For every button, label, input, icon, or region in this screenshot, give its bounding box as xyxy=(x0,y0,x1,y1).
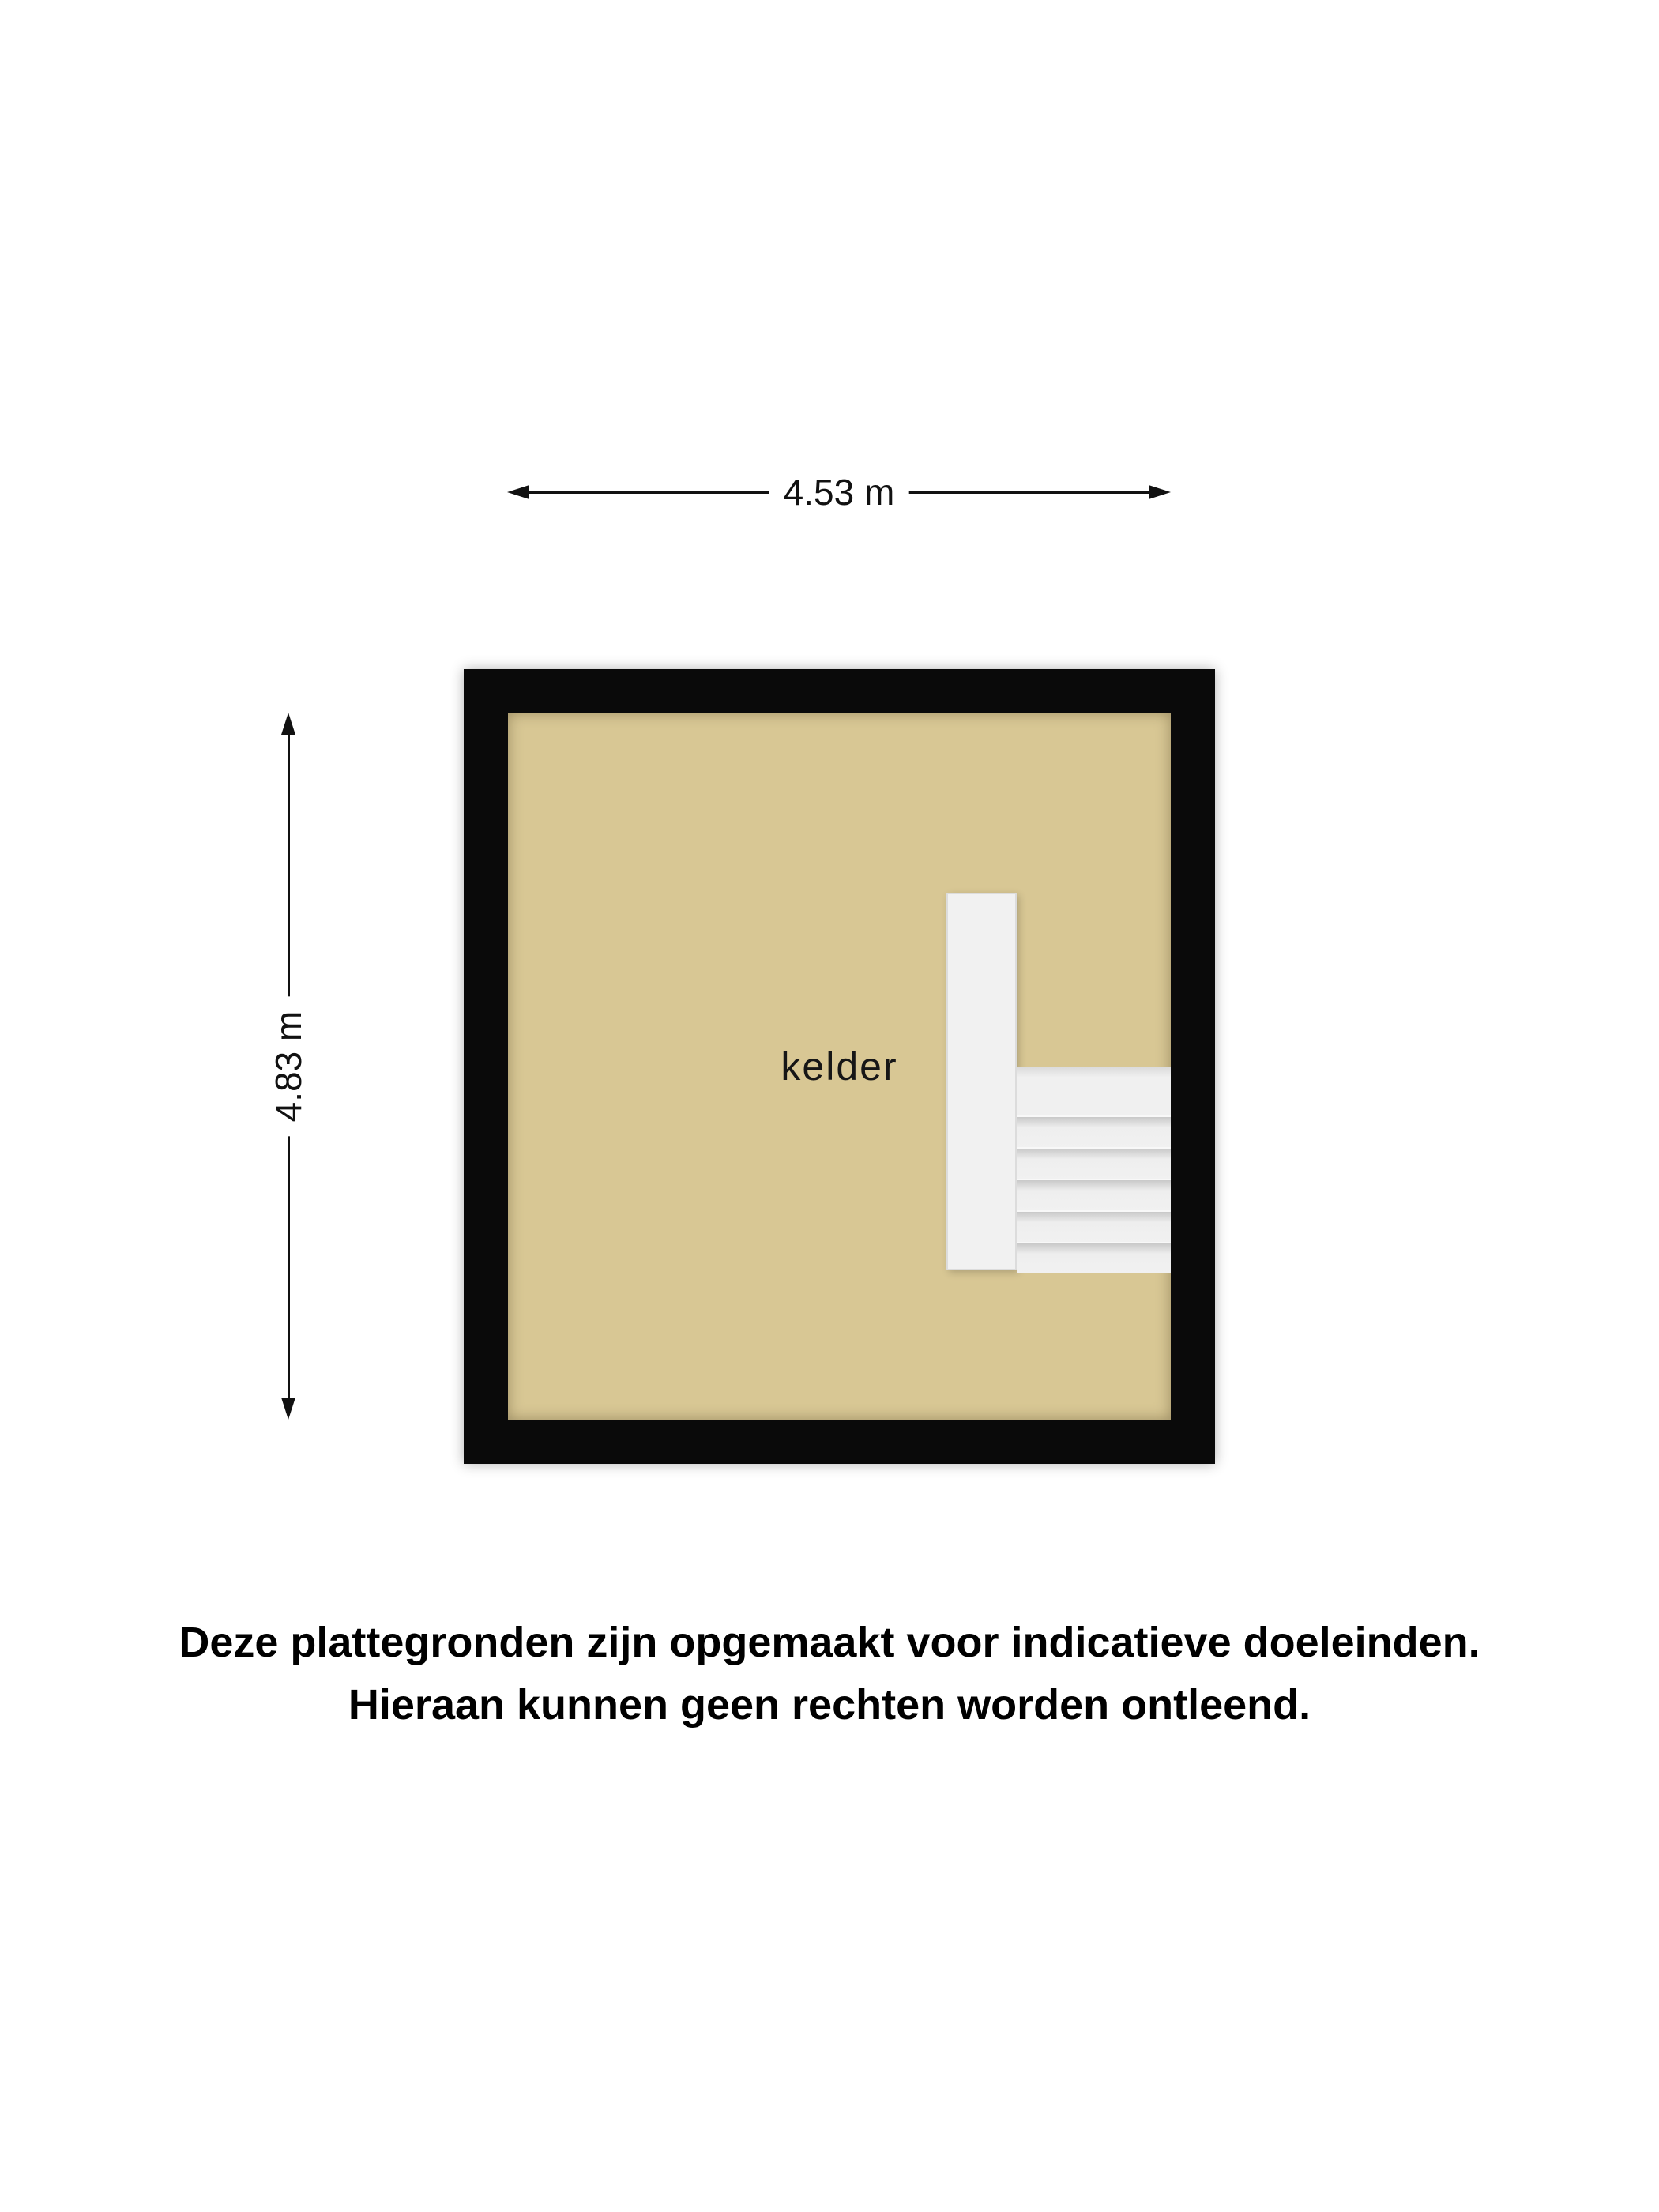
stair-landing xyxy=(1017,1066,1171,1115)
room-walls: kelder xyxy=(464,669,1215,1464)
stair-tread xyxy=(1017,1115,1171,1147)
width-dimension: 4.53 m xyxy=(507,474,1171,510)
room-floor: kelder xyxy=(508,713,1171,1420)
arrow-up-icon xyxy=(281,713,295,735)
stairs-treads xyxy=(1017,1066,1171,1273)
stair-tread xyxy=(1017,1210,1171,1242)
stair-tread xyxy=(1017,1179,1171,1210)
arrow-right-icon xyxy=(1149,485,1171,499)
disclaimer: Deze plattegronden zijn opgemaakt voor i… xyxy=(0,1612,1659,1736)
room-label: kelder xyxy=(781,1044,897,1089)
height-dimension-label: 4.83 m xyxy=(265,996,311,1136)
stair-tread xyxy=(1017,1242,1171,1273)
arrow-left-icon xyxy=(507,485,529,499)
floorplan-page: 4.53 m 4.83 m kelder Deze plattegronden … xyxy=(0,0,1659,2212)
stair-tread xyxy=(1017,1147,1171,1179)
arrow-down-icon xyxy=(281,1398,295,1420)
height-dimension: 4.83 m xyxy=(269,713,308,1420)
width-dimension-label: 4.53 m xyxy=(769,469,909,515)
disclaimer-line-1: Deze plattegronden zijn opgemaakt voor i… xyxy=(0,1612,1659,1674)
disclaimer-line-2: Hieraan kunnen geen rechten worden ontle… xyxy=(0,1674,1659,1736)
stairs-stringer xyxy=(946,893,1017,1270)
